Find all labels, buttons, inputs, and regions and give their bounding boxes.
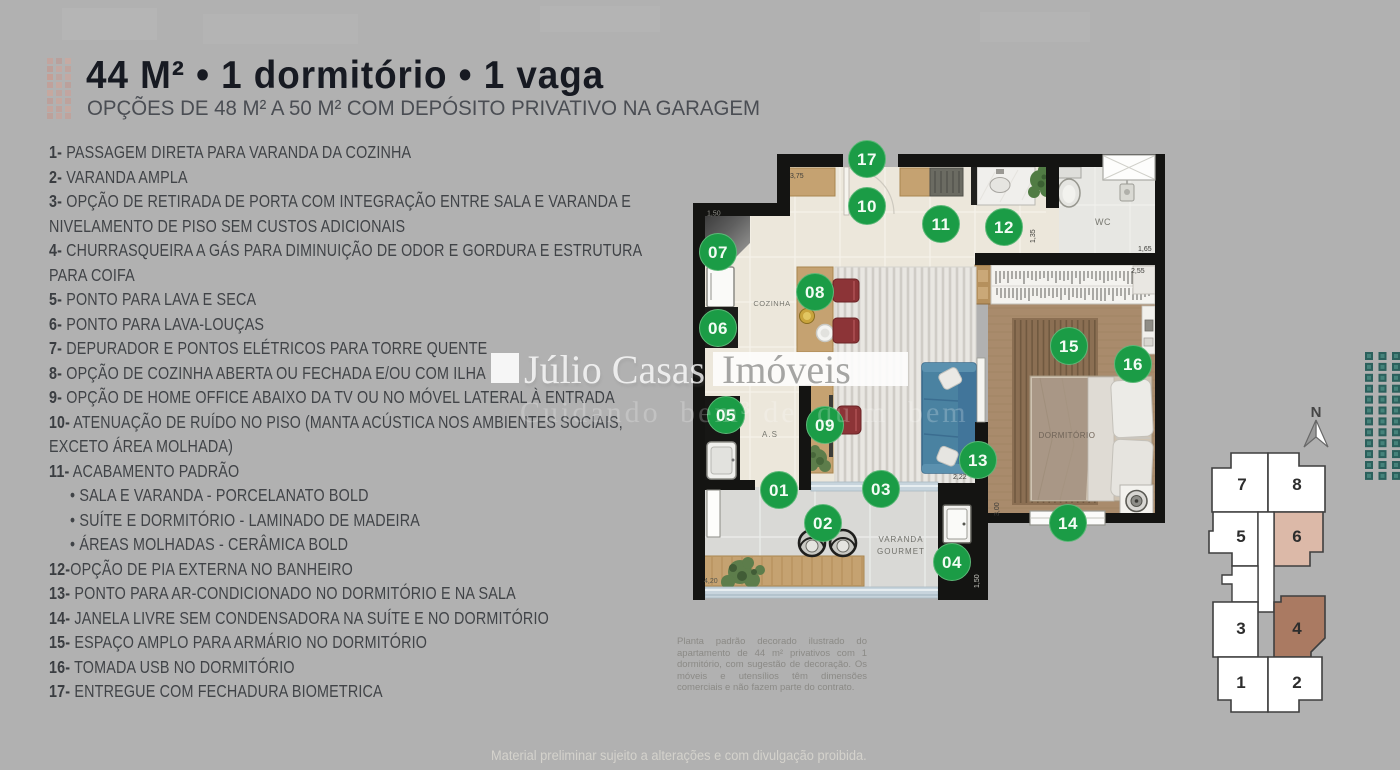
svg-text:15: 15 — [1059, 337, 1079, 356]
svg-text:16: 16 — [1123, 355, 1143, 374]
svg-text:COZINHA: COZINHA — [753, 299, 790, 308]
svg-text:07: 07 — [708, 243, 728, 262]
svg-text:12: 12 — [994, 218, 1014, 237]
svg-text:11: 11 — [932, 215, 951, 234]
svg-text:7: 7 — [1237, 475, 1246, 494]
svg-text:17: 17 — [857, 150, 877, 169]
svg-text:08: 08 — [805, 283, 825, 302]
svg-text:A.S: A.S — [762, 430, 778, 439]
svg-text:3: 3 — [1236, 619, 1245, 638]
svg-text:06: 06 — [708, 319, 728, 338]
svg-text:6: 6 — [1292, 527, 1301, 546]
svg-text:10: 10 — [857, 197, 877, 216]
svg-text:4: 4 — [1292, 619, 1302, 638]
svg-text:8: 8 — [1292, 475, 1301, 494]
svg-text:03: 03 — [871, 480, 891, 499]
svg-text:N: N — [1311, 404, 1322, 421]
svg-text:2,22: 2,22 — [953, 474, 967, 481]
svg-text:2,55: 2,55 — [1131, 268, 1145, 275]
svg-text:02: 02 — [813, 514, 833, 533]
svg-text:2: 2 — [1292, 673, 1301, 692]
svg-text:14: 14 — [1058, 514, 1078, 533]
svg-text:3,00: 3,00 — [994, 502, 1001, 516]
svg-text:3,75: 3,75 — [790, 173, 804, 180]
svg-text:VARANDA: VARANDA — [878, 535, 923, 544]
svg-text:4,20: 4,20 — [704, 578, 718, 585]
svg-text:1,50: 1,50 — [974, 574, 981, 588]
svg-text:WC: WC — [1095, 217, 1111, 227]
svg-text:04: 04 — [942, 553, 962, 572]
svg-text:DORMITÓRIO: DORMITÓRIO — [1039, 431, 1096, 440]
svg-text:13: 13 — [968, 451, 988, 470]
svg-text:1: 1 — [1236, 673, 1245, 692]
svg-text:01: 01 — [769, 481, 789, 500]
svg-text:1,35: 1,35 — [1030, 229, 1037, 243]
svg-text:GOURMET: GOURMET — [877, 547, 925, 556]
svg-text:1,65: 1,65 — [1138, 246, 1152, 253]
svg-text:5: 5 — [1236, 527, 1245, 546]
svg-text:1,50: 1,50 — [707, 211, 721, 218]
